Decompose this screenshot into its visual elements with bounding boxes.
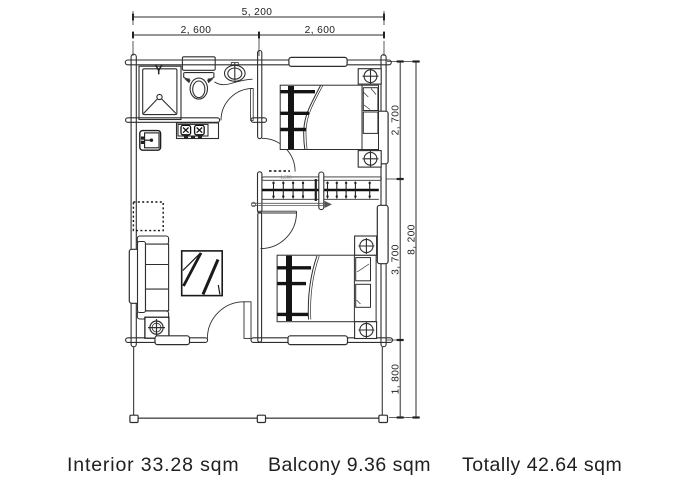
svg-text:2, 700: 2, 700 (391, 105, 402, 136)
svg-text:1, 800: 1, 800 (391, 364, 402, 395)
svg-text:2, 600: 2, 600 (181, 25, 212, 36)
svg-text:8, 200: 8, 200 (406, 224, 417, 255)
svg-text:3, 700: 3, 700 (391, 244, 402, 275)
svg-text:2, 600: 2, 600 (305, 25, 336, 36)
svg-text:5, 200: 5, 200 (242, 7, 273, 18)
svg-text:1,500: 1,500 (280, 175, 292, 180)
